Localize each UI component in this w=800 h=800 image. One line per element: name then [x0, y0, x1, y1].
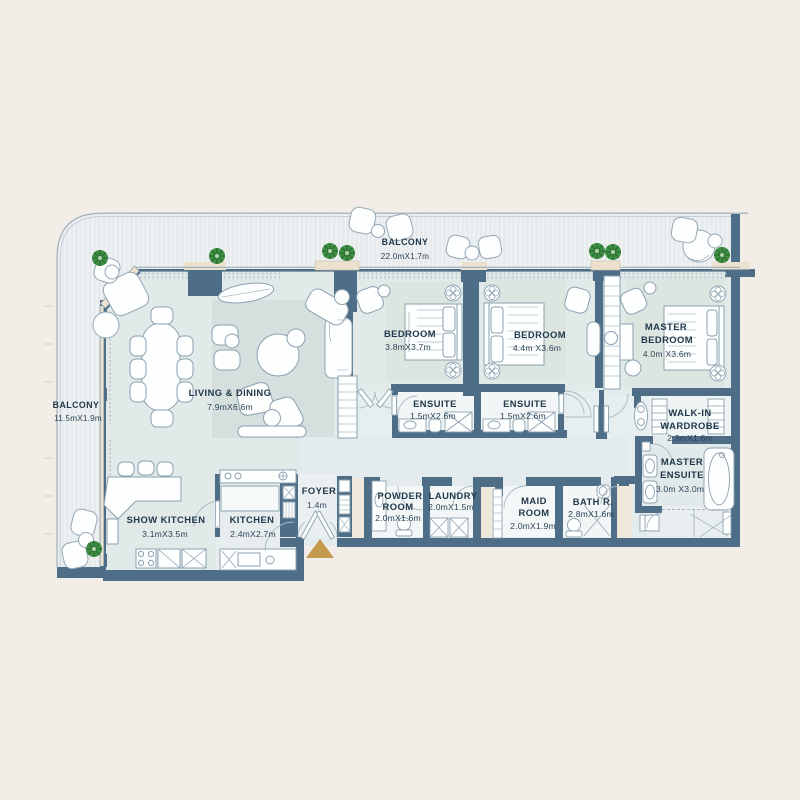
svg-text:11.5mX1.9m: 11.5mX1.9m: [54, 414, 102, 423]
svg-text:3.0m X3.0m: 3.0m X3.0m: [656, 484, 704, 494]
svg-text:1.5mX2.6m: 1.5mX2.6m: [500, 411, 546, 421]
svg-text:22.0mX1.7m: 22.0mX1.7m: [381, 252, 429, 261]
svg-text:MAID: MAID: [521, 495, 547, 506]
svg-text:LAUNDRY: LAUNDRY: [429, 490, 478, 501]
svg-text:WARDROBE: WARDROBE: [660, 420, 719, 431]
svg-text:ROOM: ROOM: [383, 501, 414, 512]
svg-text:ROOM: ROOM: [519, 507, 550, 518]
svg-text:KITCHEN: KITCHEN: [230, 514, 275, 525]
svg-text:BEDROOM: BEDROOM: [384, 328, 436, 339]
svg-text:7.9mX6.6m: 7.9mX6.6m: [207, 402, 253, 412]
svg-text:BALCONY: BALCONY: [382, 237, 429, 247]
svg-text:BATH R.: BATH R.: [573, 496, 613, 507]
svg-text:3.8mX3.7m: 3.8mX3.7m: [385, 342, 431, 352]
svg-text:BEDROOM: BEDROOM: [514, 329, 566, 340]
svg-text:LIVING & DINING: LIVING & DINING: [189, 387, 272, 398]
svg-text:2.0mX1.9m: 2.0mX1.9m: [510, 521, 556, 531]
svg-text:4.0m X3.6m: 4.0m X3.6m: [643, 349, 691, 359]
svg-text:2.0mX1.5m: 2.0mX1.5m: [428, 502, 474, 512]
svg-text:BEDROOM: BEDROOM: [641, 334, 693, 345]
svg-text:2.0mX1.6m: 2.0mX1.6m: [375, 513, 421, 523]
svg-text:BALCONY: BALCONY: [53, 400, 100, 410]
svg-text:ENSUITE: ENSUITE: [660, 469, 704, 480]
svg-text:3.1mX3.5m: 3.1mX3.5m: [142, 529, 188, 539]
svg-text:1.4m: 1.4m: [307, 500, 327, 510]
svg-text:2.4mX2.7m: 2.4mX2.7m: [230, 529, 276, 539]
svg-text:ENSUITE: ENSUITE: [503, 398, 547, 409]
svg-text:2.8mX1.6m: 2.8mX1.6m: [568, 509, 614, 519]
svg-text:1.5mX2.6m: 1.5mX2.6m: [410, 411, 456, 421]
svg-text:SHOW KITCHEN: SHOW KITCHEN: [127, 514, 206, 525]
svg-text:4.4m X3.6m: 4.4m X3.6m: [513, 343, 561, 353]
svg-text:ENSUITE: ENSUITE: [413, 398, 457, 409]
svg-text:POWDER: POWDER: [378, 490, 423, 501]
svg-text:MASTER: MASTER: [645, 321, 687, 332]
svg-text:FOYER: FOYER: [302, 485, 337, 496]
svg-text:2.3mX1.6m: 2.3mX1.6m: [667, 433, 713, 443]
svg-text:WALK-IN: WALK-IN: [668, 407, 711, 418]
svg-text:MASTER: MASTER: [661, 456, 703, 467]
